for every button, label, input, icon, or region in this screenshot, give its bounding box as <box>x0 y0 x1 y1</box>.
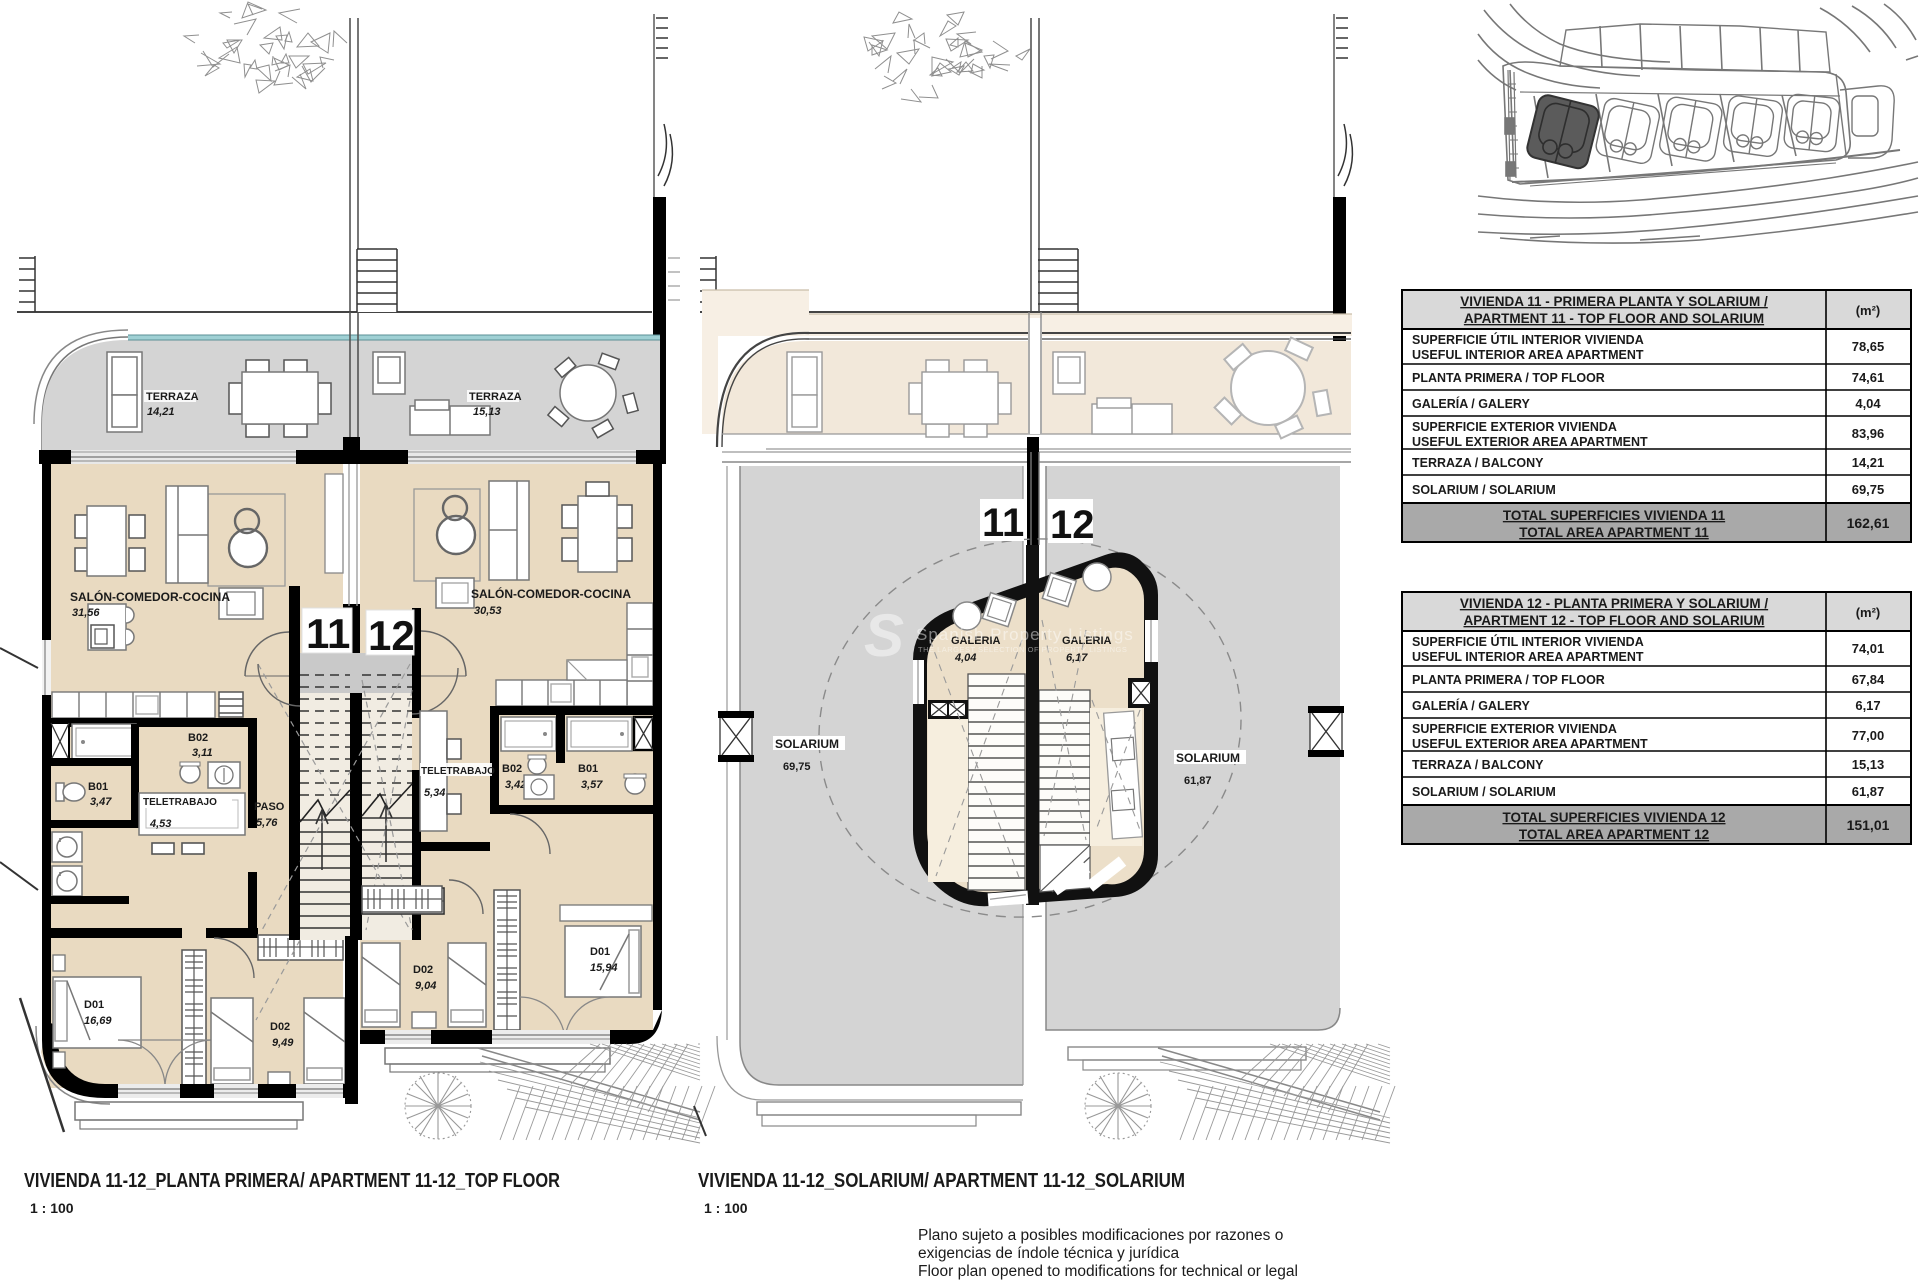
svg-text:15,13: 15,13 <box>473 406 501 418</box>
svg-text:APARTMENT 12 - TOP FLOOR AND S: APARTMENT 12 - TOP FLOOR AND SOLARIUM <box>1463 613 1764 628</box>
svg-text:TERRAZA: TERRAZA <box>469 391 522 403</box>
svg-text:1 : 100: 1 : 100 <box>30 1200 74 1216</box>
svg-text:Floor plan opened to modificat: Floor plan opened to modifications for t… <box>918 1263 1298 1280</box>
svg-text:12: 12 <box>1050 503 1095 547</box>
svg-text:15,13: 15,13 <box>1852 757 1885 772</box>
svg-text:31,56: 31,56 <box>72 607 100 619</box>
svg-text:THE LARGEST SELECTION OF PROPE: THE LARGEST SELECTION OF PROPERTY LISTIN… <box>918 645 1127 654</box>
svg-text:14,21: 14,21 <box>147 406 175 418</box>
svg-text:D01: D01 <box>590 946 610 958</box>
svg-text:VIVIENDA 11-12_SOLARIUM/ APART: VIVIENDA 11-12_SOLARIUM/ APARTMENT 11-12… <box>698 1170 1185 1192</box>
svg-text:B01: B01 <box>88 781 108 793</box>
svg-text:3,57: 3,57 <box>581 779 603 791</box>
svg-text:78,65: 78,65 <box>1852 339 1885 354</box>
svg-text:5,34: 5,34 <box>424 787 445 799</box>
svg-text:B02: B02 <box>188 732 208 744</box>
svg-text:exigencias de índole técnica y: exigencias de índole técnica y jurídica <box>918 1245 1179 1262</box>
svg-text:D01: D01 <box>84 999 104 1011</box>
svg-text:61,87: 61,87 <box>1184 775 1212 787</box>
svg-text:TERRAZA / BALCONY: TERRAZA / BALCONY <box>1412 758 1544 772</box>
svg-text:SOLARIUM: SOLARIUM <box>775 737 839 751</box>
svg-text:SUPERFICIE ÚTIL INTERIOR VIVIE: SUPERFICIE ÚTIL INTERIOR VIVIENDA <box>1412 332 1644 347</box>
svg-text:61,87: 61,87 <box>1852 784 1885 799</box>
svg-text:151,01: 151,01 <box>1847 817 1890 833</box>
svg-text:TELETRABAJO: TELETRABAJO <box>143 797 217 808</box>
svg-text:SOLARIUM / SOLARIUM: SOLARIUM / SOLARIUM <box>1412 483 1556 497</box>
svg-text:USEFUL EXTERIOR AREA APARTMENT: USEFUL EXTERIOR AREA APARTMENT <box>1412 737 1648 751</box>
svg-text:9,04: 9,04 <box>415 980 436 992</box>
svg-text:9,49: 9,49 <box>272 1037 294 1049</box>
svg-text:B02: B02 <box>502 763 522 775</box>
svg-text:3,47: 3,47 <box>90 796 112 808</box>
svg-text:D02: D02 <box>270 1021 290 1033</box>
svg-text:Spanish Property Listings: Spanish Property Listings <box>916 625 1134 644</box>
svg-text:TOTAL SUPERFICIES VIVIENDA 12: TOTAL SUPERFICIES VIVIENDA 12 <box>1502 810 1725 825</box>
svg-text:B01: B01 <box>578 763 598 775</box>
svg-text:SUPERFICIE EXTERIOR VIVIENDA: SUPERFICIE EXTERIOR VIVIENDA <box>1412 722 1617 736</box>
svg-text:USEFUL INTERIOR AREA APARTMENT: USEFUL INTERIOR AREA APARTMENT <box>1412 650 1644 664</box>
svg-text:PASO: PASO <box>254 801 285 813</box>
svg-text:74,61: 74,61 <box>1852 370 1885 385</box>
svg-text:S: S <box>864 602 904 669</box>
svg-text:USEFUL INTERIOR AREA APARTMENT: USEFUL INTERIOR AREA APARTMENT <box>1412 348 1644 362</box>
svg-text:3,11: 3,11 <box>192 747 213 759</box>
svg-text:15,94: 15,94 <box>590 962 618 974</box>
svg-text:162,61: 162,61 <box>1847 515 1890 531</box>
svg-text:4,53: 4,53 <box>149 818 171 830</box>
svg-text:4,04: 4,04 <box>1855 396 1881 411</box>
svg-text:SALÓN-COMEDOR-COCINA: SALÓN-COMEDOR-COCINA <box>471 586 631 601</box>
svg-text:12: 12 <box>368 612 415 659</box>
svg-text:PLANTA PRIMERA / TOP FLOOR: PLANTA PRIMERA / TOP FLOOR <box>1412 673 1605 687</box>
svg-text:77,00: 77,00 <box>1852 728 1885 743</box>
svg-text:APARTMENT 11 - TOP FLOOR AND S: APARTMENT 11 - TOP FLOOR AND SOLARIUM <box>1464 311 1764 326</box>
svg-text:11: 11 <box>306 610 350 657</box>
svg-text:1 : 100: 1 : 100 <box>704 1200 748 1216</box>
svg-text:14,21: 14,21 <box>1852 455 1885 470</box>
svg-text:SOLARIUM / SOLARIUM: SOLARIUM / SOLARIUM <box>1412 785 1556 799</box>
svg-text:VIVIENDA 12 - PLANTA PRIMERA Y: VIVIENDA 12 - PLANTA PRIMERA Y SOLARIUM … <box>1460 596 1769 611</box>
svg-text:5,76: 5,76 <box>256 817 278 829</box>
svg-text:(m²): (m²) <box>1856 605 1881 620</box>
svg-text:SUPERFICIE ÚTIL INTERIOR VIVIE: SUPERFICIE ÚTIL INTERIOR VIVIENDA <box>1412 634 1644 649</box>
svg-text:Plano sujeto a posibles modifi: Plano sujeto a posibles modificaciones p… <box>918 1227 1283 1244</box>
svg-text:USEFUL EXTERIOR AREA APARTMENT: USEFUL EXTERIOR AREA APARTMENT <box>1412 435 1648 449</box>
svg-text:67,84: 67,84 <box>1852 672 1885 687</box>
svg-text:69,75: 69,75 <box>783 761 811 773</box>
svg-text:11: 11 <box>982 501 1024 545</box>
svg-text:30,53: 30,53 <box>474 605 502 617</box>
svg-text:SALÓN-COMEDOR-COCINA: SALÓN-COMEDOR-COCINA <box>70 589 230 604</box>
svg-text:6,17: 6,17 <box>1855 698 1880 713</box>
svg-text:69,75: 69,75 <box>1852 482 1885 497</box>
svg-text:16,69: 16,69 <box>84 1015 112 1027</box>
svg-text:GALERÍA / GALERY: GALERÍA / GALERY <box>1412 698 1530 713</box>
svg-text:(m²): (m²) <box>1856 303 1881 318</box>
svg-text:GALERÍA / GALERY: GALERÍA / GALERY <box>1412 396 1530 411</box>
svg-text:TELETRABAJO: TELETRABAJO <box>421 766 495 777</box>
svg-text:VIVIENDA 11-12_PLANTA PRIMERA/: VIVIENDA 11-12_PLANTA PRIMERA/ APARTMENT… <box>24 1170 560 1192</box>
svg-text:74,01: 74,01 <box>1852 641 1885 656</box>
svg-text:TERRAZA / BALCONY: TERRAZA / BALCONY <box>1412 456 1544 470</box>
svg-text:PLANTA PRIMERA / TOP FLOOR: PLANTA PRIMERA / TOP FLOOR <box>1412 371 1605 385</box>
svg-text:SUPERFICIE EXTERIOR VIVIENDA: SUPERFICIE EXTERIOR VIVIENDA <box>1412 420 1617 434</box>
svg-text:VIVIENDA 11 - PRIMERA PLANTA Y: VIVIENDA 11 - PRIMERA PLANTA Y SOLARIUM … <box>1460 294 1768 309</box>
svg-text:D02: D02 <box>413 964 433 976</box>
svg-text:TOTAL AREA APARTMENT 11: TOTAL AREA APARTMENT 11 <box>1519 525 1709 540</box>
svg-text:TERRAZA: TERRAZA <box>146 391 199 403</box>
svg-text:TOTAL SUPERFICIES VIVIENDA 11: TOTAL SUPERFICIES VIVIENDA 11 <box>1503 508 1726 523</box>
svg-text:TOTAL AREA APARTMENT 12: TOTAL AREA APARTMENT 12 <box>1519 827 1709 842</box>
svg-text:SOLARIUM: SOLARIUM <box>1176 751 1240 765</box>
svg-text:83,96: 83,96 <box>1852 426 1885 441</box>
svg-text:3,42: 3,42 <box>505 779 526 791</box>
